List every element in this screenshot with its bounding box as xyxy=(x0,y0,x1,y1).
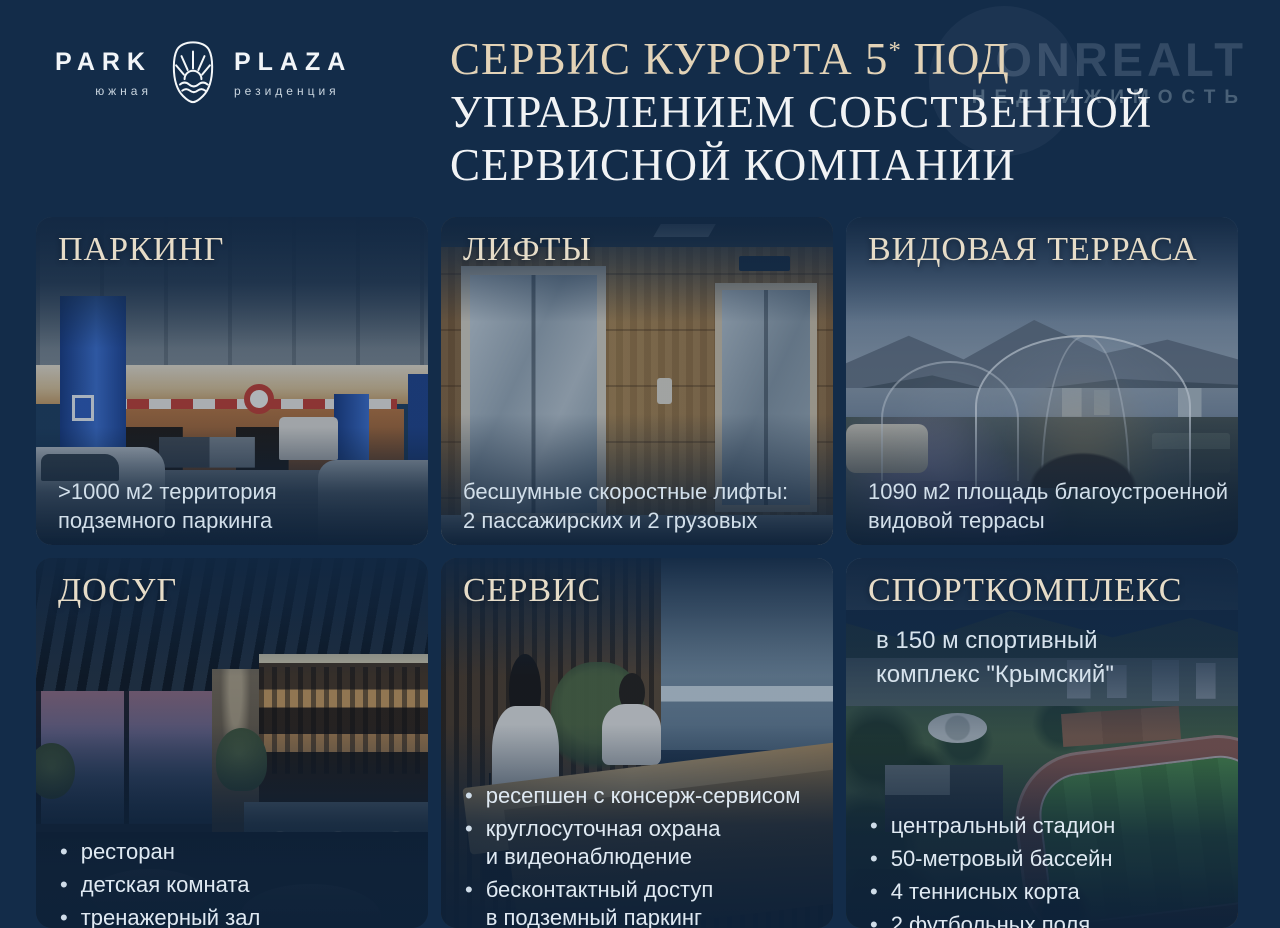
title-line-3: СЕРВИСНОЙ КОМПАНИИ xyxy=(450,139,1152,192)
bullet-item: 2 футбольных поля xyxy=(870,911,1115,928)
card-sport-subtitle: в 150 м спортивный комплекс "Крымский" xyxy=(876,624,1114,692)
card-terrace-title: ВИДОВАЯ ТЕРРАСА xyxy=(868,231,1198,269)
bullet-item: 50-метровый бассейн xyxy=(870,845,1115,873)
card-service: СЕРВИС ресепшен с консерж-сервисом кругл… xyxy=(441,558,833,928)
logo-plaza-subtitle: резиденция xyxy=(234,84,340,98)
bullet-item: 4 теннисных корта xyxy=(870,878,1115,906)
promo-page: { "theme": { "background": "#132c49", "c… xyxy=(0,0,1280,910)
card-sport-title: СПОРТКОМПЛЕКС xyxy=(868,572,1182,610)
card-sport: СПОРТКОМПЛЕКС в 150 м спортивный комплек… xyxy=(846,558,1238,928)
bullet-item: тренажерный зал xyxy=(60,904,260,928)
star-superscript: * xyxy=(888,37,900,64)
card-leisure-title: ДОСУГ xyxy=(58,572,177,610)
logo-park-block: PARK южная xyxy=(55,48,152,98)
title-line-2: УПРАВЛЕНИЕМ СОБСТВЕННОЙ xyxy=(450,86,1152,139)
card-terrace: ВИДОВАЯ ТЕРРАСА 1090 м2 площадь благоуст… xyxy=(846,217,1238,545)
bullet-item: ресепшен с консерж-сервисом xyxy=(465,782,800,810)
card-service-title: СЕРВИС xyxy=(463,572,601,610)
title-line-1: СЕРВИС КУРОРТА 5*ПОД xyxy=(450,24,1152,86)
bullet-item: ресторан xyxy=(60,838,260,866)
card-leisure-bullet-list: ресторан детская комната тренажерный зал xyxy=(60,838,260,928)
sun-over-sea-crest-icon xyxy=(170,40,216,106)
logo-plaza-word: PLAZA xyxy=(234,48,352,77)
card-parking-caption: >1000 м2 территория подземного паркинга xyxy=(58,477,277,535)
card-terrace-caption: 1090 м2 площадь благоустроенной видовой … xyxy=(868,477,1228,535)
amenities-grid: ПАРКИНГ >1000 м2 территория подземного п… xyxy=(36,217,1238,928)
card-parking: ПАРКИНГ >1000 м2 территория подземного п… xyxy=(36,217,428,545)
card-lifts-caption: бесшумные скоростные лифты: 2 пассажирск… xyxy=(463,477,788,535)
bullet-item: центральный стадион xyxy=(870,812,1115,840)
logo-park-word: PARK xyxy=(55,48,152,77)
logo-park-subtitle: южная xyxy=(95,84,152,98)
logo-plaza-block: PLAZA резиденция xyxy=(234,48,352,98)
page-title: СЕРВИС КУРОРТА 5*ПОД УПРАВЛЕНИЕМ СОБСТВЕ… xyxy=(450,24,1152,192)
card-parking-title: ПАРКИНГ xyxy=(58,231,224,269)
card-sport-bullet-list: центральный стадион 50-метровый бассейн … xyxy=(870,812,1115,928)
card-leisure: ДОСУГ ресторан детская комната тренажерн… xyxy=(36,558,428,928)
card-lifts-title: ЛИФТЫ xyxy=(463,231,592,269)
card-service-bullet-list: ресепшен с консерж-сервисом круглосуточн… xyxy=(465,782,800,928)
bullet-item: детская комната xyxy=(60,871,260,899)
park-plaza-logo: PARK южная PLAZA резиденция xyxy=(55,40,352,106)
card-lifts: ЛИФТЫ бесшумные скоростные лифты: 2 пасс… xyxy=(441,217,833,545)
bullet-item: круглосуточная охранаи видеонаблюдение xyxy=(465,815,800,871)
bullet-item: бесконтактный доступв подземный паркинг xyxy=(465,876,800,928)
